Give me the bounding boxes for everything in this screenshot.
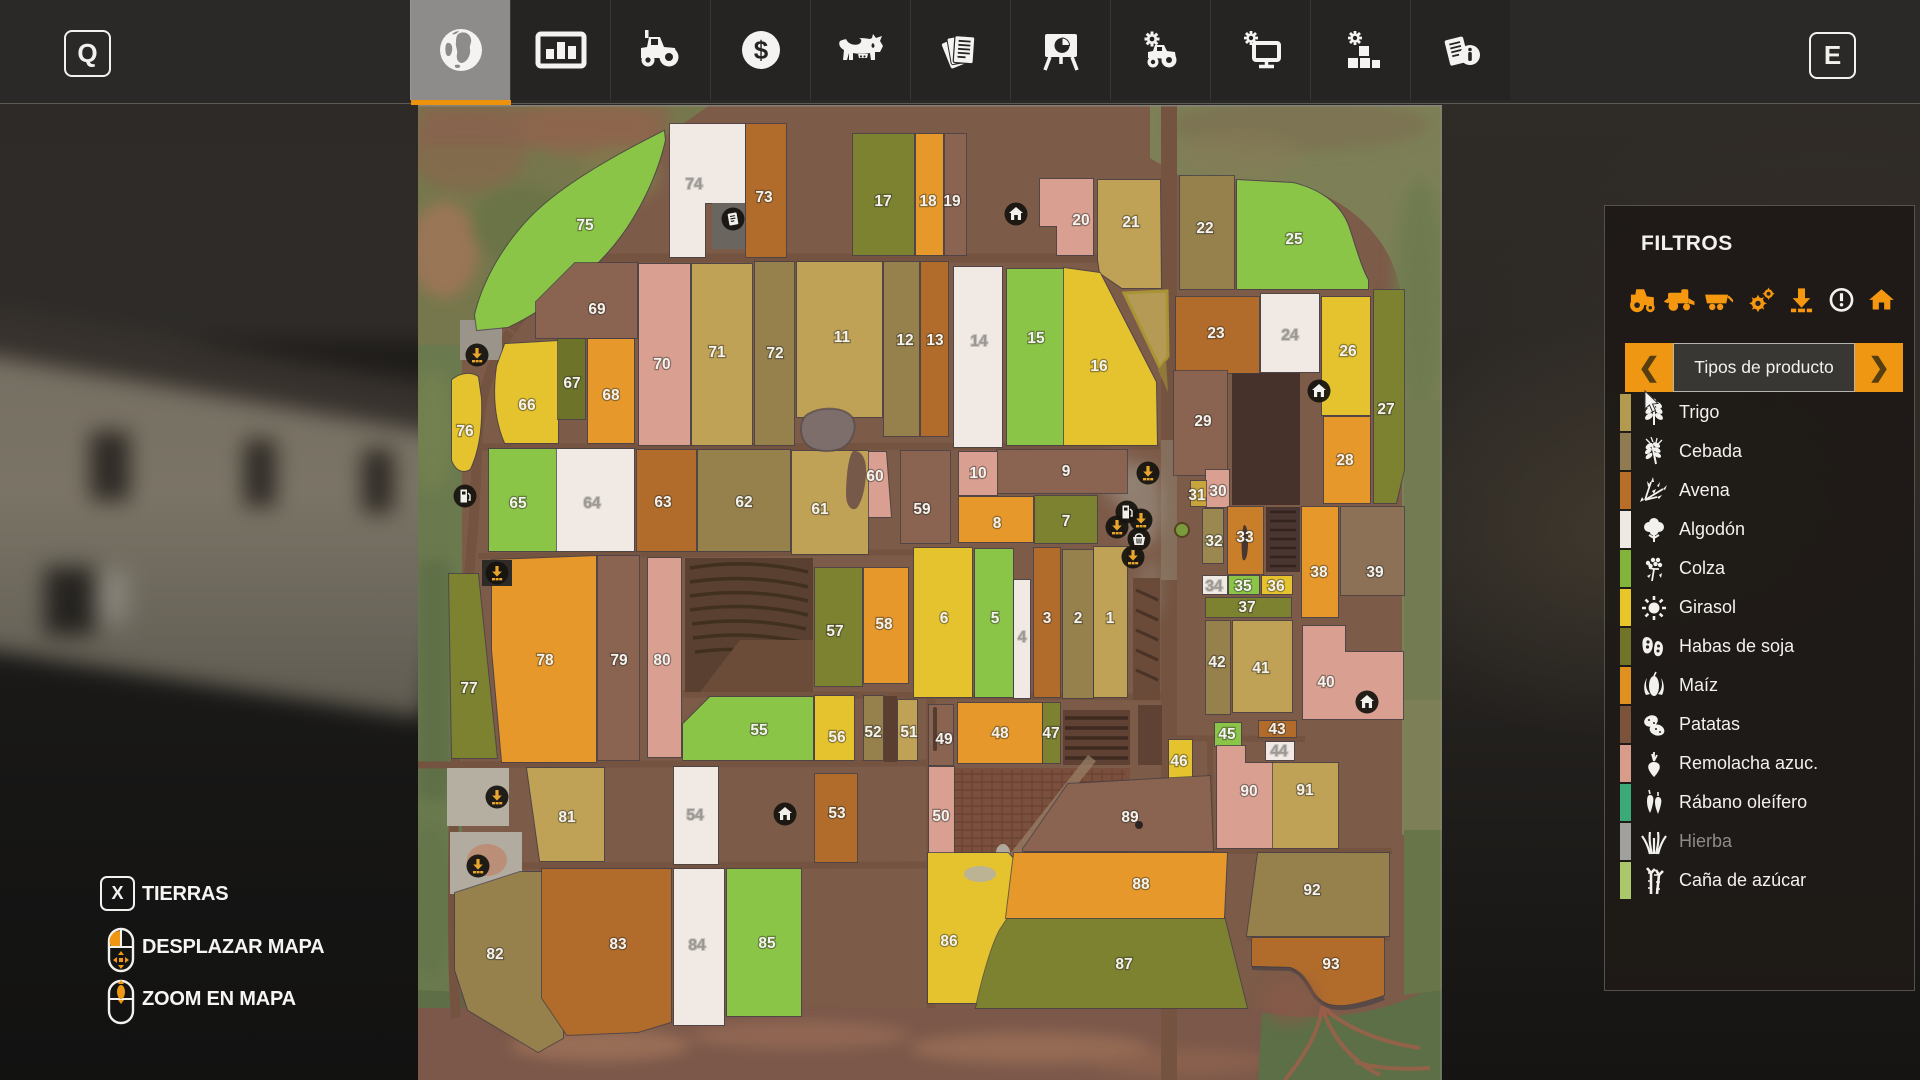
svg-text:1: 1 bbox=[1106, 610, 1115, 627]
svg-text:62: 62 bbox=[735, 494, 752, 511]
svg-text:58: 58 bbox=[875, 616, 893, 633]
svg-text:67: 67 bbox=[563, 375, 580, 392]
svg-text:51: 51 bbox=[900, 724, 918, 741]
svg-text:17: 17 bbox=[874, 193, 891, 210]
svg-text:73: 73 bbox=[755, 189, 773, 206]
svg-text:28: 28 bbox=[1336, 452, 1354, 469]
svg-text:22: 22 bbox=[1196, 220, 1213, 237]
svg-text:18: 18 bbox=[919, 193, 937, 210]
svg-text:10: 10 bbox=[969, 465, 986, 482]
svg-text:29: 29 bbox=[1194, 413, 1212, 430]
svg-text:82: 82 bbox=[486, 946, 503, 963]
svg-text:85: 85 bbox=[758, 935, 776, 952]
svg-text:7: 7 bbox=[1062, 513, 1071, 530]
svg-text:86: 86 bbox=[940, 933, 958, 950]
svg-text:93: 93 bbox=[1322, 956, 1340, 973]
svg-text:11: 11 bbox=[834, 329, 851, 346]
svg-text:74: 74 bbox=[685, 176, 703, 193]
svg-text:37: 37 bbox=[1238, 599, 1255, 616]
svg-text:21: 21 bbox=[1122, 214, 1140, 231]
svg-text:88: 88 bbox=[1132, 876, 1150, 893]
svg-text:8: 8 bbox=[993, 515, 1002, 532]
svg-text:53: 53 bbox=[828, 805, 846, 822]
svg-text:27: 27 bbox=[1377, 401, 1394, 418]
svg-text:23: 23 bbox=[1207, 325, 1225, 342]
svg-text:81: 81 bbox=[558, 809, 576, 826]
svg-text:48: 48 bbox=[991, 725, 1009, 742]
svg-text:84: 84 bbox=[688, 937, 706, 954]
svg-text:26: 26 bbox=[1339, 343, 1357, 360]
svg-text:24: 24 bbox=[1281, 327, 1299, 344]
svg-text:91: 91 bbox=[1296, 782, 1314, 799]
svg-text:70: 70 bbox=[653, 356, 670, 373]
svg-text:45: 45 bbox=[1218, 726, 1236, 743]
svg-text:52: 52 bbox=[864, 724, 881, 741]
svg-text:87: 87 bbox=[1115, 956, 1132, 973]
svg-text:36: 36 bbox=[1267, 578, 1285, 595]
svg-text:20: 20 bbox=[1072, 212, 1089, 229]
svg-text:3: 3 bbox=[1043, 610, 1052, 627]
svg-text:90: 90 bbox=[1240, 783, 1257, 800]
svg-text:4: 4 bbox=[1018, 629, 1027, 646]
svg-text:12: 12 bbox=[896, 332, 913, 349]
svg-text:65: 65 bbox=[509, 495, 527, 512]
svg-text:66: 66 bbox=[518, 397, 536, 414]
svg-text:83: 83 bbox=[609, 936, 627, 953]
svg-text:47: 47 bbox=[1042, 725, 1059, 742]
svg-text:63: 63 bbox=[654, 494, 672, 511]
svg-text:61: 61 bbox=[811, 501, 829, 518]
svg-text:59: 59 bbox=[913, 501, 931, 518]
svg-text:89: 89 bbox=[1121, 809, 1139, 826]
svg-text:68: 68 bbox=[602, 387, 620, 404]
svg-text:40: 40 bbox=[1317, 674, 1334, 691]
svg-text:76: 76 bbox=[456, 423, 474, 440]
svg-text:16: 16 bbox=[1090, 358, 1108, 375]
svg-text:9: 9 bbox=[1062, 463, 1071, 480]
svg-text:34: 34 bbox=[1205, 578, 1223, 595]
svg-text:71: 71 bbox=[708, 344, 726, 361]
svg-text:43: 43 bbox=[1268, 721, 1286, 738]
svg-text:14: 14 bbox=[970, 333, 988, 350]
svg-text:77: 77 bbox=[460, 680, 477, 697]
svg-text:80: 80 bbox=[653, 652, 670, 669]
svg-text:41: 41 bbox=[1252, 660, 1270, 677]
svg-text:15: 15 bbox=[1027, 330, 1045, 347]
svg-text:78: 78 bbox=[536, 652, 554, 669]
svg-text:64: 64 bbox=[583, 495, 601, 512]
svg-text:75: 75 bbox=[576, 217, 594, 234]
svg-text:60: 60 bbox=[866, 468, 883, 485]
svg-text:19: 19 bbox=[943, 193, 961, 210]
svg-text:35: 35 bbox=[1234, 578, 1252, 595]
svg-text:50: 50 bbox=[932, 808, 949, 825]
svg-text:79: 79 bbox=[610, 652, 628, 669]
svg-text:46: 46 bbox=[1170, 753, 1188, 770]
svg-text:57: 57 bbox=[826, 623, 843, 640]
svg-text:39: 39 bbox=[1366, 564, 1384, 581]
svg-text:13: 13 bbox=[926, 332, 944, 349]
svg-text:54: 54 bbox=[686, 807, 704, 824]
svg-text:49: 49 bbox=[935, 731, 953, 748]
svg-text:30: 30 bbox=[1209, 483, 1226, 500]
svg-text:69: 69 bbox=[588, 301, 606, 318]
svg-text:2: 2 bbox=[1074, 610, 1083, 627]
svg-text:31: 31 bbox=[1188, 487, 1206, 504]
svg-text:6: 6 bbox=[940, 610, 949, 627]
svg-text:$: $ bbox=[753, 35, 768, 65]
svg-text:42: 42 bbox=[1208, 654, 1225, 671]
svg-text:55: 55 bbox=[750, 722, 768, 739]
svg-text:33: 33 bbox=[1236, 529, 1254, 546]
svg-text:38: 38 bbox=[1310, 564, 1328, 581]
svg-text:56: 56 bbox=[828, 729, 846, 746]
svg-text:44: 44 bbox=[1270, 743, 1288, 760]
svg-text:72: 72 bbox=[766, 345, 783, 362]
svg-text:92: 92 bbox=[1303, 882, 1320, 899]
svg-text:5: 5 bbox=[991, 610, 1000, 627]
svg-text:32: 32 bbox=[1205, 533, 1222, 550]
svg-text:25: 25 bbox=[1285, 231, 1303, 248]
